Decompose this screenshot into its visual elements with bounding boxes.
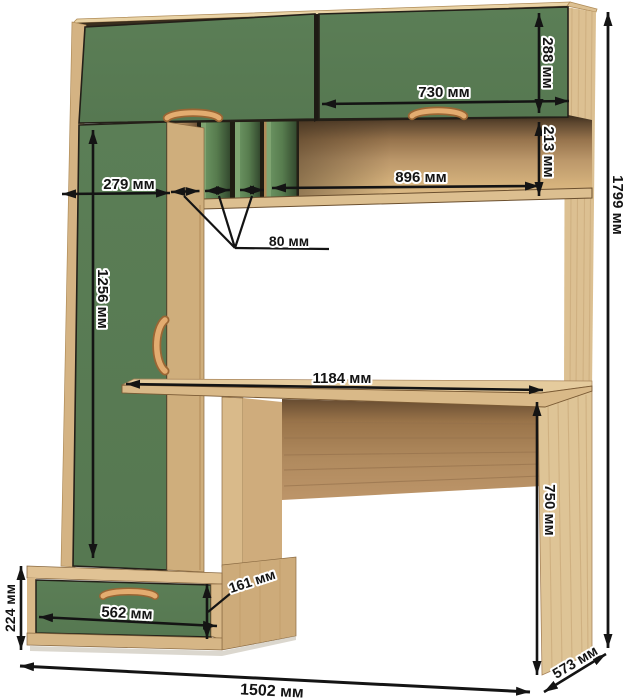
svg-text:80 мм: 80 мм [269, 233, 309, 249]
svg-text:730 мм: 730 мм [418, 84, 469, 101]
svg-text:279 мм: 279 мм [103, 176, 154, 193]
svg-text:896 мм: 896 мм [395, 169, 446, 186]
svg-text:288 мм: 288 мм [539, 37, 556, 88]
svg-text:562 мм: 562 мм [101, 604, 153, 624]
svg-text:1256 мм: 1256 мм [94, 269, 111, 329]
svg-text:213 мм: 213 мм [540, 126, 557, 177]
svg-text:1184 мм: 1184 мм [313, 370, 372, 387]
svg-text:1799 мм: 1799 мм [609, 175, 626, 235]
svg-text:750 мм: 750 мм [541, 484, 558, 535]
svg-text:224 мм: 224 мм [2, 584, 18, 632]
svg-text:1502 мм: 1502 мм [240, 681, 305, 700]
